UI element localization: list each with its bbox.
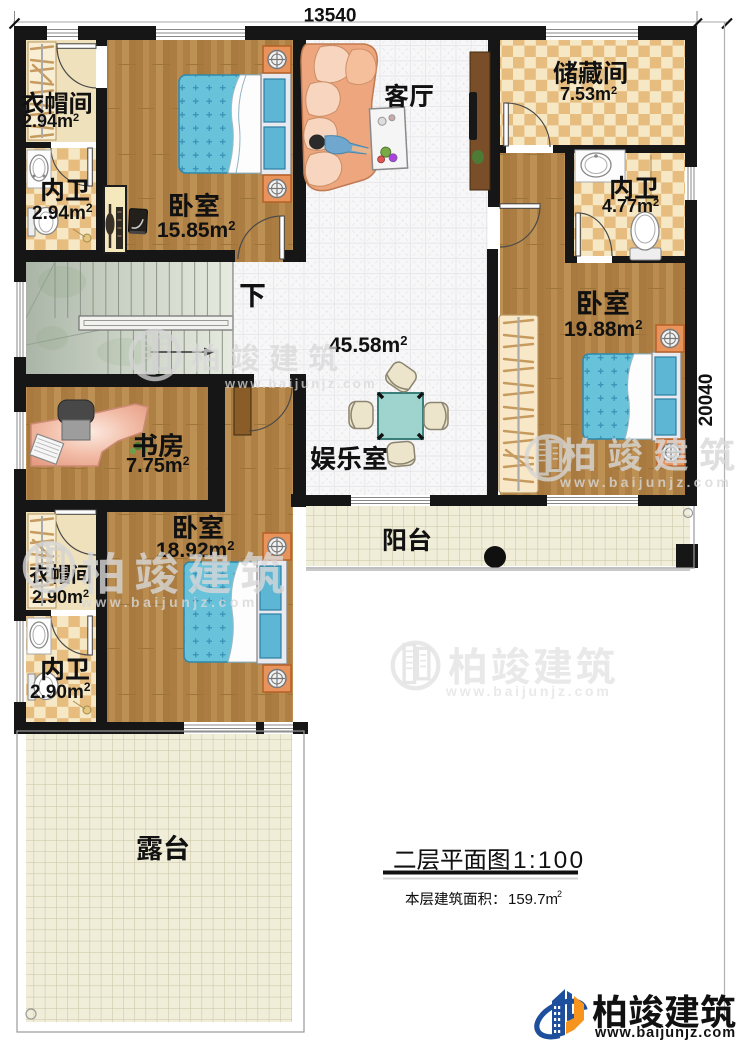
svg-text:45.58m2: 45.58m2: [329, 333, 407, 357]
svg-text:15.85m2: 15.85m2: [157, 218, 235, 242]
svg-text:www.baijunjz.com: www.baijunjz.com: [445, 683, 612, 699]
svg-text:2.94m2: 2.94m2: [22, 111, 79, 131]
svg-text:7.75m2: 7.75m2: [126, 454, 190, 477]
svg-text:20040: 20040: [696, 374, 717, 427]
svg-text:www.baijunjz.com: www.baijunjz.com: [559, 474, 732, 490]
svg-text:1:100: 1:100: [513, 847, 585, 874]
svg-text:www.baijunjz.com: www.baijunjz.com: [594, 1025, 736, 1041]
svg-text:2: 2: [557, 889, 562, 899]
svg-text:13540: 13540: [304, 6, 357, 27]
svg-text:19.88m2: 19.88m2: [564, 317, 642, 341]
svg-text:2.90m2: 2.90m2: [30, 680, 91, 703]
svg-text:7.53m2: 7.53m2: [560, 84, 617, 104]
svg-text:www.baijunjz.com: www.baijunjz.com: [80, 594, 258, 610]
svg-text:2.94m2: 2.94m2: [32, 201, 93, 224]
svg-text:4.77m2: 4.77m2: [602, 196, 659, 216]
svg-text:www.baijunjz.com: www.baijunjz.com: [224, 376, 377, 391]
svg-text:159.7m: 159.7m: [508, 891, 558, 908]
